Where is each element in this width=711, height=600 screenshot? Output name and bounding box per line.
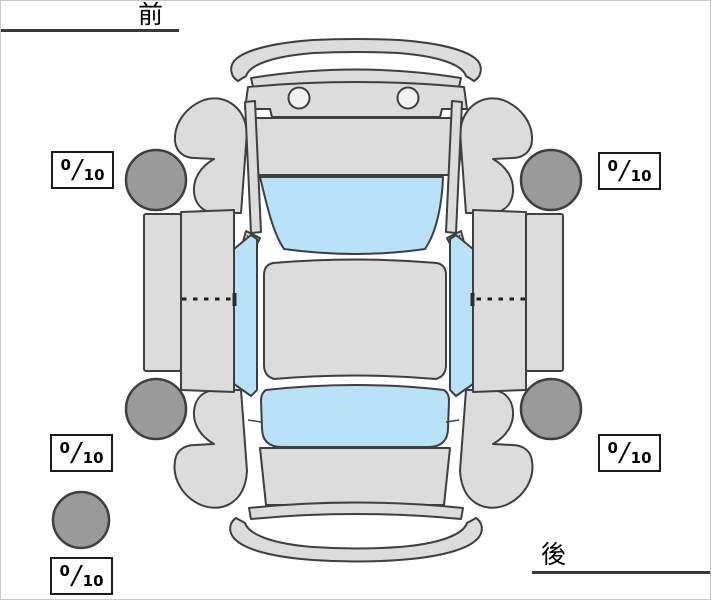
windshield-glass — [260, 177, 443, 254]
rocker-panel — [144, 214, 181, 371]
score-slash: / — [72, 566, 81, 586]
rear-window-glass — [261, 385, 449, 447]
tire-score-front-left: 0/10 — [51, 151, 114, 189]
score-value: 0 — [607, 157, 617, 175]
tire-front-left-icon — [126, 150, 186, 210]
score-value: 0 — [59, 439, 69, 457]
quarter-seam — [248, 420, 261, 422]
rear-bumper — [230, 518, 482, 562]
headlight-left-icon — [289, 88, 310, 109]
roof-panel — [264, 260, 446, 380]
front-fender — [175, 98, 247, 213]
left-side-assembly — [126, 98, 261, 507]
front-fascia — [245, 82, 467, 117]
score-denominator: 10 — [631, 449, 652, 467]
score-value: 0 — [607, 439, 617, 457]
tire-score-spare: 0/10 — [50, 557, 113, 595]
score-value: 0 — [59, 562, 69, 580]
right-side-assembly — [446, 98, 581, 507]
score-slash: / — [73, 160, 82, 180]
score-denominator: 10 — [83, 449, 104, 467]
vehicle-condition-diagram: 前 後 — [0, 0, 711, 600]
tire-score-front-right: 0/10 — [598, 152, 661, 190]
score-slash: / — [620, 443, 629, 463]
door-panel — [181, 210, 234, 392]
car-top-view — [1, 1, 711, 600]
tire-score-rear-left: 0/10 — [50, 434, 113, 472]
score-value: 0 — [60, 156, 70, 174]
trunk-panel — [260, 448, 450, 505]
hood-panel — [247, 118, 465, 175]
score-slash: / — [72, 443, 81, 463]
score-denominator: 10 — [84, 166, 105, 184]
score-denominator: 10 — [631, 167, 652, 185]
side-window-glass — [234, 235, 257, 396]
score-slash: / — [620, 161, 629, 181]
tire-score-rear-right: 0/10 — [598, 434, 661, 472]
headlight-right-icon — [398, 88, 419, 109]
tire-rear-left-icon — [126, 379, 186, 439]
score-denominator: 10 — [83, 572, 104, 590]
rear-cowl-strip — [249, 503, 463, 520]
spare-tire-icon — [53, 492, 109, 548]
